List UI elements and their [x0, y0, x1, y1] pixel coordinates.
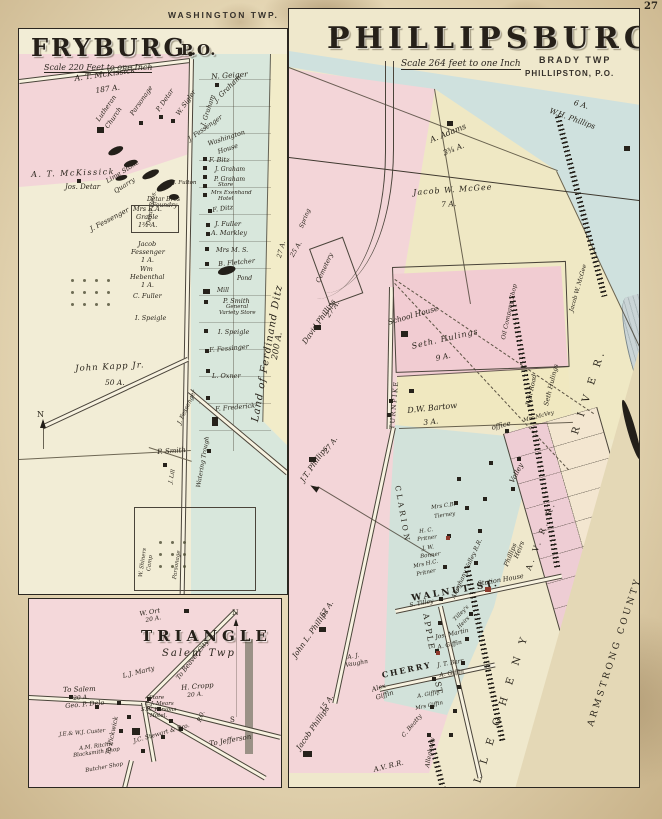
building-icon [205, 262, 209, 266]
building-icon [215, 83, 219, 87]
building-icon [427, 733, 431, 737]
building-icon [432, 677, 436, 681]
tree-icon [95, 279, 98, 282]
building-icon [206, 396, 210, 400]
building-icon [443, 565, 447, 569]
atlas-plate: 27 WASHINGTON TWP. Frankle Phillips FRYB… [0, 0, 662, 819]
building-icon [517, 457, 521, 461]
quarry-blob [169, 194, 179, 200]
phillipsburg-map-panel: PHILLIPSBURG. Scale 264 feet to one Inch… [288, 8, 640, 788]
building-icon [206, 223, 210, 227]
building-icon [474, 561, 478, 565]
building-icon [438, 621, 442, 625]
quarry-blob [107, 144, 124, 157]
building-icon [469, 612, 473, 616]
building-icon [387, 413, 391, 417]
tree-icon [71, 291, 74, 294]
building-icon [163, 463, 167, 467]
building-icon [139, 121, 143, 125]
building-icon [119, 729, 123, 733]
building-icon [203, 157, 207, 161]
page-number: 27 [644, 2, 658, 12]
fryburg-features-layer [19, 29, 287, 594]
building-icon [212, 417, 218, 426]
tree-icon [107, 303, 110, 306]
tree-icon [95, 291, 98, 294]
building-icon [171, 119, 175, 123]
building-icon [95, 705, 99, 709]
tree-icon [71, 279, 74, 282]
building-icon [439, 597, 443, 601]
building-icon [624, 146, 630, 151]
tree-icon [159, 565, 162, 568]
building-icon [159, 115, 163, 119]
building-icon [436, 651, 440, 655]
building-icon [309, 237, 363, 306]
building-icon [203, 289, 210, 294]
building-icon [117, 701, 121, 705]
fryburg-map-panel: FRYBURG. P.O. Scale 220 Feet to one Inch… [18, 28, 288, 595]
building-icon [203, 184, 207, 188]
building-icon [453, 709, 457, 713]
building-icon [179, 727, 183, 731]
building-icon [392, 261, 570, 373]
building-icon [132, 728, 140, 735]
building-icon [131, 205, 179, 233]
tree-icon [171, 565, 174, 568]
building-icon [446, 536, 450, 540]
building-icon [206, 232, 210, 236]
building-icon [203, 166, 207, 170]
tree-icon [159, 541, 162, 544]
building-icon [147, 697, 151, 701]
building-icon [478, 529, 482, 533]
building-icon [203, 175, 207, 179]
building-icon [409, 389, 414, 393]
tree-icon [83, 291, 86, 294]
building-icon [483, 497, 487, 501]
building-icon [511, 487, 515, 491]
building-icon [208, 209, 212, 213]
tree-icon [183, 541, 186, 544]
building-icon [127, 715, 131, 719]
building-icon [134, 507, 256, 591]
building-icon [161, 735, 165, 739]
tree-icon [183, 553, 186, 556]
quarry-blob [123, 158, 138, 168]
tree-icon [171, 553, 174, 556]
quarry-blob [619, 399, 640, 461]
building-icon [141, 749, 145, 753]
building-icon [465, 506, 469, 510]
tree-icon [171, 541, 174, 544]
building-icon [485, 587, 491, 592]
quarry-blob [217, 264, 236, 276]
building-icon [309, 457, 316, 462]
building-icon [505, 429, 509, 433]
building-icon [204, 329, 208, 333]
triangle-features-layer [29, 599, 281, 787]
building-icon [449, 733, 453, 737]
building-icon [465, 637, 469, 641]
building-icon [169, 719, 173, 723]
tree-icon [95, 303, 98, 306]
building-icon [69, 695, 73, 699]
tree-icon [159, 553, 162, 556]
tree-icon [83, 279, 86, 282]
building-icon [206, 369, 210, 373]
tree-icon [107, 291, 110, 294]
building-icon [454, 501, 458, 505]
washington-twp-label: WASHINGTON TWP. [168, 10, 279, 20]
building-icon [157, 707, 161, 711]
quarry-blob [141, 167, 160, 181]
building-icon [303, 751, 312, 757]
building-icon [489, 461, 493, 465]
tree-icon [83, 303, 86, 306]
building-icon [457, 685, 461, 689]
building-icon [207, 449, 211, 453]
building-icon [184, 609, 189, 613]
building-icon [314, 325, 321, 330]
building-icon [461, 661, 465, 665]
tree-icon [71, 303, 74, 306]
building-icon [205, 349, 209, 353]
building-icon [430, 705, 434, 709]
tree-icon [107, 279, 110, 282]
building-icon [97, 127, 104, 133]
building-icon [77, 179, 81, 183]
building-icon [447, 121, 453, 126]
triangle-map-panel: TRIANGLE Salem Twp W. Ort20 A.To Beaver … [28, 598, 282, 788]
phillipsburg-features-layer [289, 9, 639, 787]
building-icon [319, 627, 326, 632]
building-icon [457, 477, 461, 481]
building-icon [389, 399, 393, 403]
quarry-blob [155, 177, 176, 194]
quarry-blob [115, 174, 128, 182]
tree-icon [183, 565, 186, 568]
building-icon [205, 247, 209, 251]
building-icon [203, 193, 207, 197]
building-icon [204, 300, 208, 304]
